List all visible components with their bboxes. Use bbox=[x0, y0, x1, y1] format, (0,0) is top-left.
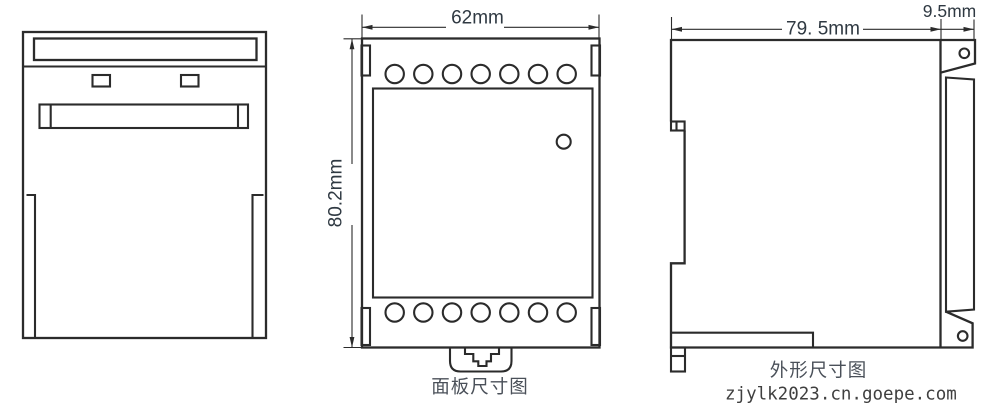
lower-panel-right-edge bbox=[253, 195, 264, 338]
width-arrow-left bbox=[362, 25, 373, 30]
mounting-hole-top bbox=[960, 49, 970, 59]
din-rail-recess bbox=[946, 78, 974, 312]
panel-face bbox=[373, 89, 593, 298]
lower-panel-left-edge bbox=[27, 195, 36, 338]
height-arrow-bottom bbox=[350, 337, 355, 348]
terminal-hole bbox=[500, 303, 518, 321]
width-arrow-right bbox=[589, 25, 600, 30]
front-button-right bbox=[181, 75, 199, 87]
panel-width-dimension-label: 62mm bbox=[451, 8, 504, 29]
height-arrow-top bbox=[350, 39, 355, 50]
terminal-hole bbox=[414, 65, 432, 83]
terminal-hole bbox=[558, 303, 576, 321]
side-hook-notch bbox=[671, 122, 685, 131]
depth-arrow-right bbox=[931, 27, 942, 32]
mounting-hole-bottom bbox=[958, 331, 968, 341]
indicator-led bbox=[557, 135, 571, 149]
terminal-hole bbox=[529, 303, 547, 321]
rail-arrow-right bbox=[964, 27, 975, 32]
panel-dimension-view: 62mm 80.2mm bbox=[326, 8, 601, 398]
watermark-text: zjylk2023.cn.goepe.com bbox=[725, 385, 957, 405]
side-bottom-step bbox=[671, 333, 813, 348]
terminal-hole bbox=[472, 303, 490, 321]
rail-dimension: 9.5mm bbox=[923, 1, 976, 40]
height-dimension: 80.2mm bbox=[326, 39, 363, 348]
outline-dimension-view: 79. 5mm 9.5mm 外形尺寸图 bbox=[671, 1, 976, 381]
rj45-jack-socket bbox=[465, 348, 499, 367]
front-button-left bbox=[93, 75, 111, 87]
outline-rail-dimension-label: 9.5mm bbox=[923, 1, 976, 21]
technical-drawing: 62mm 80.2mm bbox=[0, 0, 1000, 411]
display-window bbox=[34, 39, 257, 61]
terminal-hole bbox=[500, 65, 518, 83]
terminal-cover-slot bbox=[40, 105, 249, 129]
top-terminal-holes bbox=[386, 65, 576, 83]
din-clip-foot bbox=[671, 348, 685, 372]
outline-depth-dimension-label: 79. 5mm bbox=[786, 19, 860, 40]
panel-height-dimension-label: 80.2mm bbox=[326, 159, 347, 228]
terminal-hole bbox=[386, 65, 404, 83]
rj45-jack-outline bbox=[450, 348, 512, 372]
terminal-hole bbox=[443, 65, 461, 83]
panel-body bbox=[362, 39, 600, 348]
front-body bbox=[23, 32, 266, 338]
terminal-hole bbox=[472, 65, 490, 83]
bottom-terminal-holes bbox=[386, 303, 576, 321]
side-body-outline bbox=[671, 40, 975, 348]
terminal-hole bbox=[558, 65, 576, 83]
terminal-hole bbox=[386, 303, 404, 321]
width-dimension: 62mm bbox=[362, 8, 599, 39]
depth-arrow-left bbox=[672, 27, 683, 32]
front-view bbox=[23, 32, 266, 338]
depth-dimension: 79. 5mm bbox=[672, 17, 942, 40]
outline-view-caption: 外形尺寸图 bbox=[770, 360, 868, 381]
terminal-hole bbox=[529, 65, 547, 83]
panel-view-caption: 面板尺寸图 bbox=[431, 376, 529, 397]
terminal-hole bbox=[414, 303, 432, 321]
terminal-hole bbox=[443, 303, 461, 321]
